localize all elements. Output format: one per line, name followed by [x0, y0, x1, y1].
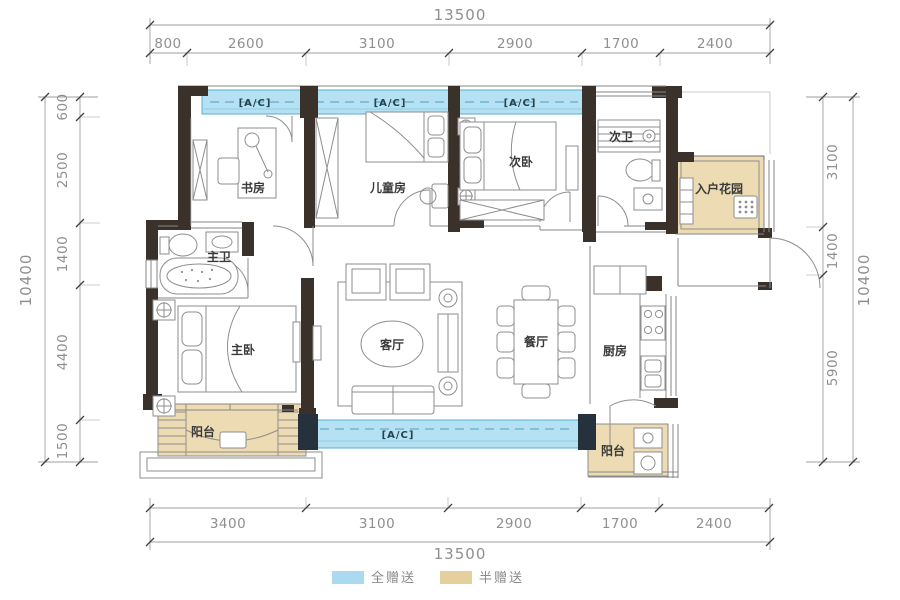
- label-dining-room: 餐厅: [524, 334, 548, 349]
- shoe-cabinet: [680, 178, 693, 224]
- ac-label-3: [A/C]: [504, 98, 537, 109]
- dim-left-4: 4400: [55, 334, 71, 370]
- dining-chair: [497, 332, 514, 352]
- bedside-shelf: [566, 146, 578, 190]
- dim-bottom-5: 2400: [696, 516, 732, 532]
- dim-right-3: 5900: [825, 350, 841, 386]
- label-living-room: 客厅: [379, 337, 404, 352]
- dim-bottom-3: 2900: [496, 516, 532, 532]
- dim-bottom-2: 3100: [359, 516, 395, 532]
- legend: 全赠送 半赠送: [332, 570, 524, 586]
- ac-zone-bottom: [312, 420, 582, 448]
- kids-room-door-arc: [394, 190, 430, 226]
- legend-swatch-half-gift: [440, 571, 472, 584]
- label-balcony-left: 阳台: [191, 424, 215, 439]
- floor-plan-drawing: 13500 800 2600 3100 2900 1700 2400 3400 …: [0, 0, 900, 600]
- dim-top-3: 3100: [359, 36, 395, 52]
- dining-chair: [558, 358, 575, 378]
- ac-label-2: [A/C]: [374, 98, 407, 109]
- dim-left-2: 2500: [55, 152, 71, 188]
- kids-room-furniture: [316, 112, 448, 218]
- legend-label-full-gift: 全赠送: [371, 570, 416, 586]
- dim-left-total: 10400: [17, 254, 35, 307]
- dim-bottom-total: 13500: [434, 545, 487, 563]
- label-second-bedroom: 次卧: [509, 154, 533, 169]
- dim-top-1: 800: [154, 36, 181, 52]
- dim-left-3: 1400: [55, 236, 71, 272]
- dim-top-total: 13500: [434, 6, 487, 24]
- dim-right-2: 1400: [825, 233, 841, 269]
- label-second-bath: 次卫: [609, 129, 633, 144]
- ac-label-1: [A/C]: [239, 98, 272, 109]
- label-entry-garden: 入户花园: [695, 181, 743, 196]
- dim-left-1: 600: [55, 93, 71, 120]
- label-kids-room: 儿童房: [369, 180, 406, 195]
- label-master-bath: 主卫: [207, 249, 231, 264]
- dining-chair: [558, 306, 575, 326]
- dim-top-4: 2900: [497, 36, 533, 52]
- bathroom-sink: [206, 232, 238, 252]
- label-balcony-right: 阳台: [601, 443, 625, 458]
- dim-right-1: 3100: [825, 144, 841, 180]
- dim-bottom-4: 1700: [602, 516, 638, 532]
- dining-chair: [497, 306, 514, 326]
- dim-left-5: 1500: [55, 423, 71, 459]
- speaker-icon: [439, 289, 457, 307]
- dim-right-total: 10400: [855, 254, 873, 307]
- laundry-sink: [634, 428, 662, 448]
- side-cabinet: [313, 326, 321, 360]
- dining-chair: [522, 286, 550, 300]
- ac-label-4: [A/C]: [382, 430, 415, 441]
- dining-chair: [522, 384, 550, 398]
- dim-top-2: 2600: [228, 36, 264, 52]
- master-bedroom-door-arc: [273, 226, 313, 266]
- speaker-icon: [439, 377, 457, 395]
- vanity-sink: [634, 188, 662, 210]
- toilet-icon: [169, 234, 197, 256]
- label-kitchen: 厨房: [603, 343, 627, 358]
- study-chair: [218, 158, 239, 184]
- dim-top-5: 1700: [603, 36, 639, 52]
- floor-plan-page: 13500 800 2600 3100 2900 1700 2400 3400 …: [0, 0, 900, 600]
- kids-desk: [432, 184, 448, 208]
- toilet-icon: [626, 159, 654, 181]
- tv-cabinet: [293, 322, 300, 362]
- legend-swatch-full-gift: [332, 571, 364, 584]
- entry-door-arc: [770, 238, 820, 288]
- second-bedroom-furniture: [458, 118, 578, 220]
- second-bath-door-arc: [598, 196, 628, 226]
- dining-chair: [558, 332, 575, 352]
- label-master-bedroom: 主卧: [231, 342, 255, 357]
- master-bedroom-furniture: [153, 300, 300, 416]
- washing-machine-icon: [634, 452, 662, 474]
- dim-top-6: 2400: [697, 36, 733, 52]
- dining-chair: [497, 358, 514, 378]
- legend-label-half-gift: 半赠送: [479, 571, 524, 586]
- label-study: 书房: [241, 180, 265, 195]
- dim-bottom-1: 3400: [210, 516, 246, 532]
